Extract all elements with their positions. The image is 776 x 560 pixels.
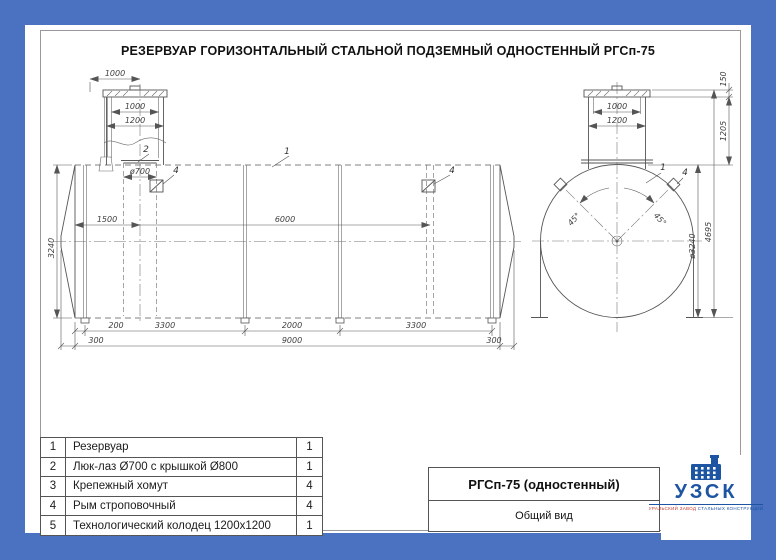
clamp-rings xyxy=(81,165,496,323)
dim-well-1200: 1200 xyxy=(125,116,145,125)
callout-manhole: 2 xyxy=(143,145,149,155)
dim-top-1000: 1000 xyxy=(105,69,125,78)
dim-9000: 9000 xyxy=(282,336,302,345)
dim-150: 150 xyxy=(719,71,728,86)
side-view-dimensions: 1000 1000 1200 ø700 1500 6000 3240 xyxy=(47,69,517,350)
dim-1205: 1205 xyxy=(719,121,728,141)
dim-3300a: 3300 xyxy=(155,321,175,330)
dim-200: 200 xyxy=(108,321,123,330)
dim-3240: 3240 xyxy=(47,238,56,258)
dim-45-left: 45° xyxy=(566,211,582,228)
end-view-dimensions: 150 1205 4695 ø3240 xyxy=(648,71,733,317)
dim-dia-3240: ø3240 xyxy=(688,233,697,259)
technical-drawing: 1000 1000 1200 ø700 1500 6000 3240 xyxy=(0,0,776,560)
dim-3300b: 3300 xyxy=(406,321,426,330)
dim-6000: 6000 xyxy=(275,215,295,224)
end-view: 45° 45° 1000 1200 150 1205 4695 ø3240 xyxy=(531,71,733,332)
dim-neck-1000: 1000 xyxy=(607,102,627,111)
dim-45-right: 45° xyxy=(652,211,668,228)
strop-lugs xyxy=(150,165,435,316)
screenshot-root: { "page": { "title": "РЕЗЕРВУАР ГОРИЗОНТ… xyxy=(0,0,776,560)
dim-1500: 1500 xyxy=(97,215,117,224)
dim-well-1000: 1000 xyxy=(125,102,145,111)
callout-tank: 1 xyxy=(660,163,666,173)
dim-300-left: 300 xyxy=(88,336,103,345)
technological-well xyxy=(99,86,167,171)
callout-lug-right: 4 xyxy=(449,166,455,176)
callout-lug-left: 4 xyxy=(173,166,179,176)
dim-4695: 4695 xyxy=(704,222,713,242)
dim-300-right: 300 xyxy=(486,336,501,345)
callout-tank: 1 xyxy=(284,147,290,157)
dim-manhole-700: ø700 xyxy=(129,167,150,176)
dim-neck-1200: 1200 xyxy=(607,116,627,125)
dim-2000: 2000 xyxy=(282,321,302,330)
side-view-callouts: 2 4 1 4 xyxy=(138,145,455,184)
callout-lug: 4 xyxy=(682,168,688,178)
side-view: 1000 1000 1200 ø700 1500 6000 3240 xyxy=(47,69,521,350)
